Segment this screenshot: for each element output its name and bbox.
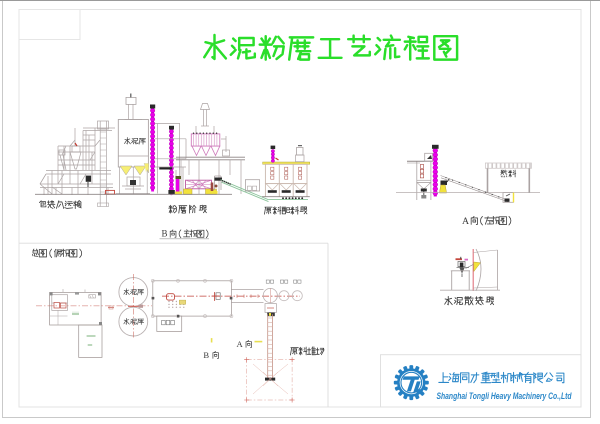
svg-text:Shanghai Tongli Heavy Machiner: Shanghai Tongli Heavy Machinery Co.,Ltd: [437, 391, 573, 402]
svg-text:B: B: [203, 350, 209, 360]
svg-text:A: A: [237, 339, 244, 349]
svg-text:A: A: [462, 216, 469, 227]
svg-text:B: B: [162, 229, 168, 239]
